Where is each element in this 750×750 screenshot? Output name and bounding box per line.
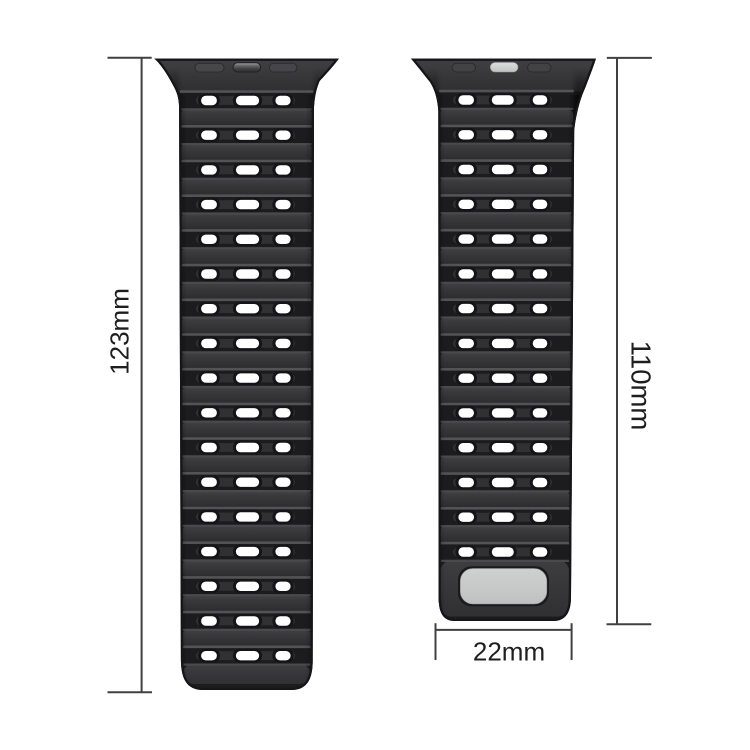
svg-text:110mm: 110mm [625,341,656,431]
svg-text:123mm: 123mm [105,288,135,375]
svg-text:22mm: 22mm [473,637,545,667]
